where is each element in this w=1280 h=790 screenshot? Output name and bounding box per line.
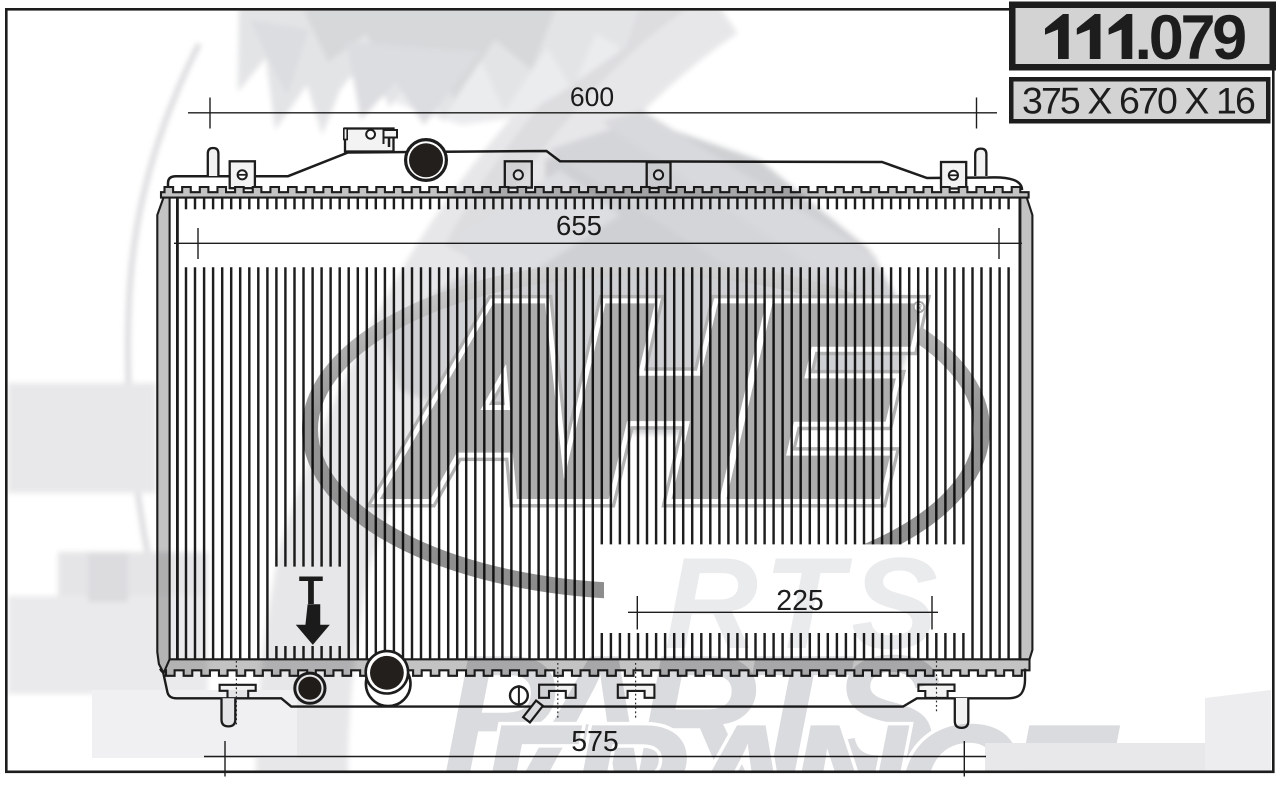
svg-text:.079: .079 [1135, 3, 1246, 73]
svg-text:R: R [916, 303, 923, 313]
svg-text:375 X 670 X 16: 375 X 670 X 16 [1022, 80, 1255, 122]
svg-text:FRANCE: FRANCE [476, 689, 1121, 790]
svg-text:AHE: AHE [386, 254, 919, 549]
